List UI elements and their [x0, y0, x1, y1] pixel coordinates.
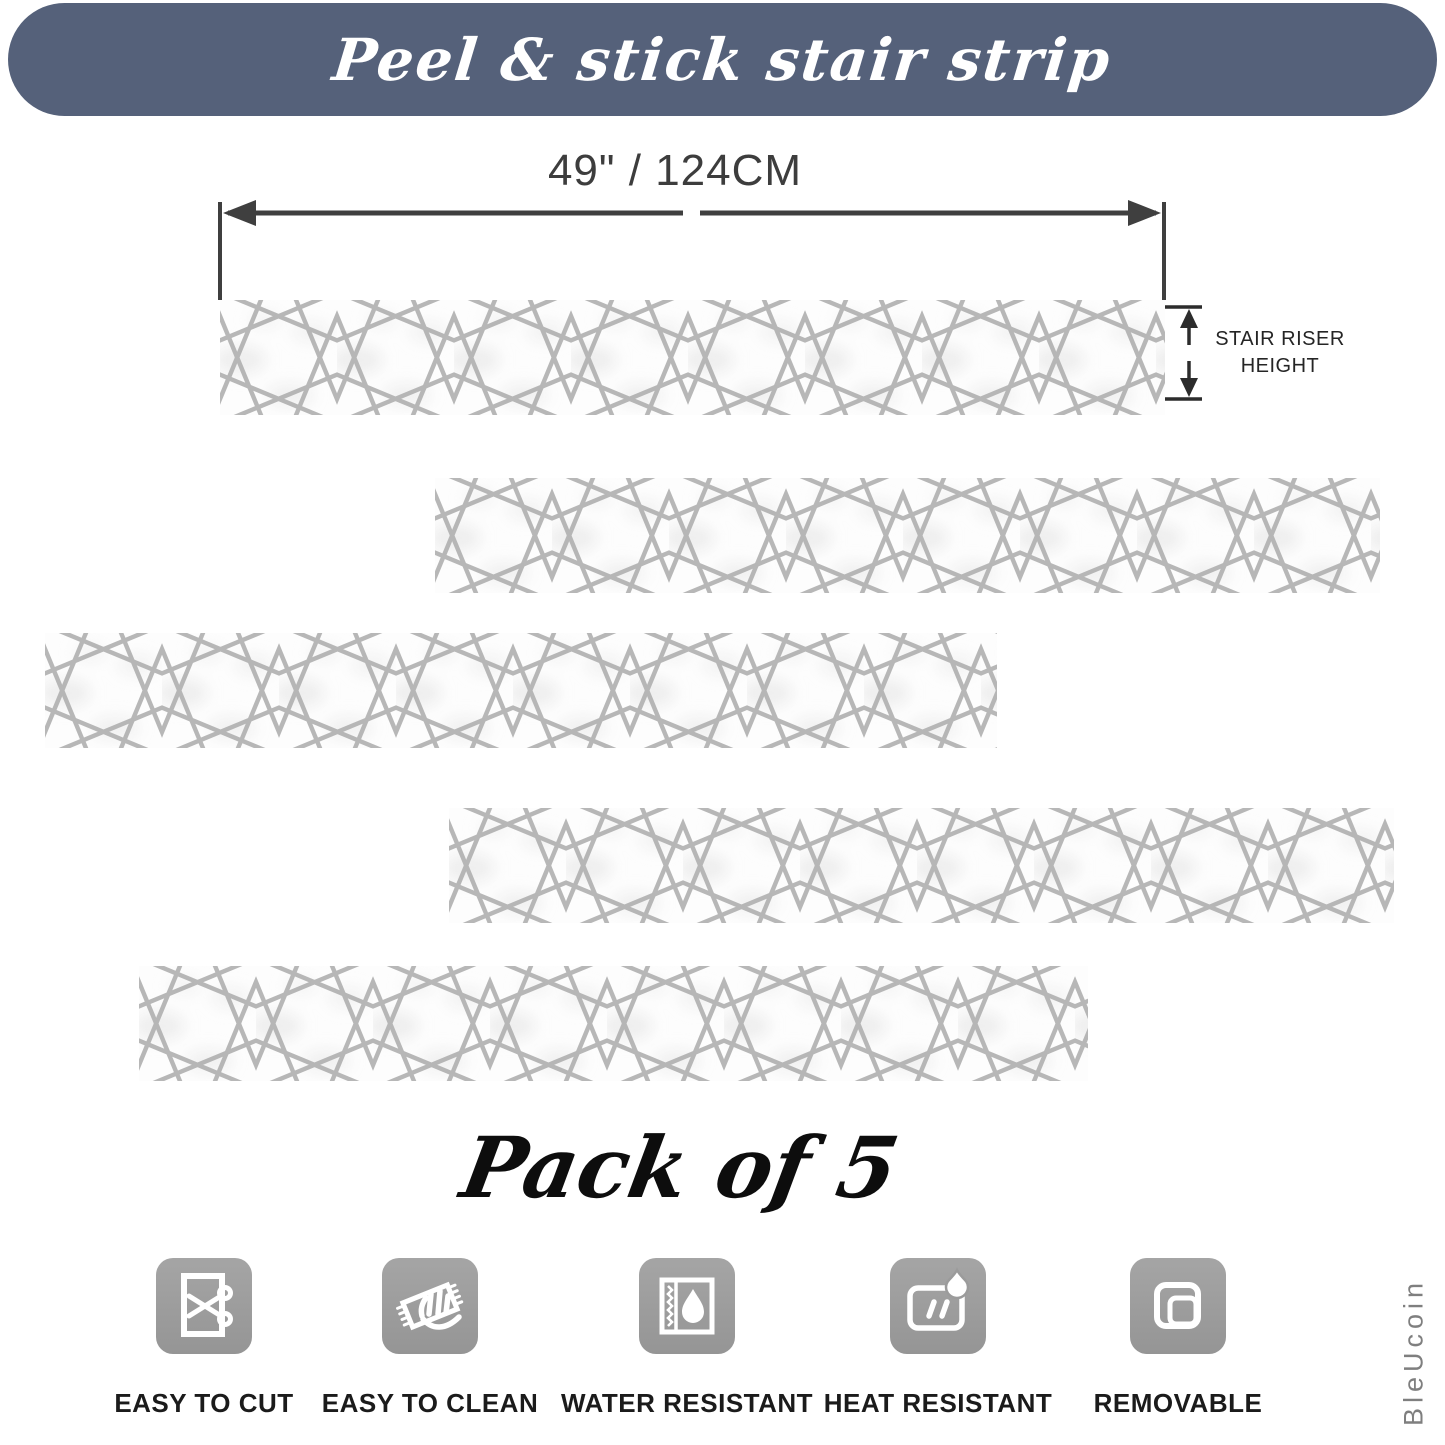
brand-logo: BleUcoin	[1399, 1278, 1430, 1426]
riser-height-label: STAIR RISER HEIGHT	[1205, 326, 1355, 380]
water-drop-icon	[637, 1256, 737, 1356]
width-dimension-arrow	[200, 195, 1200, 305]
stair-strip-1	[220, 300, 1165, 415]
stair-strip-3	[45, 633, 997, 748]
flame-icon	[888, 1256, 988, 1356]
page-title: Peel & stick stair strip	[330, 26, 1115, 94]
wipe-clean-icon	[380, 1256, 480, 1356]
stair-strip-5	[139, 966, 1088, 1081]
feature-label: HEAT RESISTANT	[824, 1388, 1052, 1419]
riser-label-line2: HEIGHT	[1205, 353, 1355, 380]
feature-label: REMOVABLE	[1094, 1388, 1263, 1419]
riser-label-line1: STAIR RISER	[1205, 326, 1355, 353]
feature-label: WATER RESISTANT	[561, 1388, 813, 1419]
feature-easy-to-cut: EASY TO CUT	[89, 1256, 319, 1419]
title-banner: Peel & stick stair strip	[8, 3, 1437, 116]
feature-easy-to-clean: EASY TO CLEAN	[315, 1256, 545, 1419]
scissors-icon	[154, 1256, 254, 1356]
stair-strip-4	[449, 808, 1394, 923]
stair-strip-2	[435, 478, 1380, 593]
product-infographic: Peel & stick stair strip 49" / 124CM STA…	[0, 0, 1445, 1445]
pack-count-text: Pack of 5	[371, 1118, 988, 1217]
feature-heat-resistant: HEAT RESISTANT	[823, 1256, 1053, 1419]
width-dimension-label: 49" / 124CM	[200, 146, 1150, 196]
feature-removable: REMOVABLE	[1063, 1256, 1293, 1419]
peel-layers-icon	[1128, 1256, 1228, 1356]
feature-water-resistant: WATER RESISTANT	[572, 1256, 802, 1419]
feature-label: EASY TO CLEAN	[322, 1388, 538, 1419]
feature-label: EASY TO CUT	[114, 1388, 293, 1419]
